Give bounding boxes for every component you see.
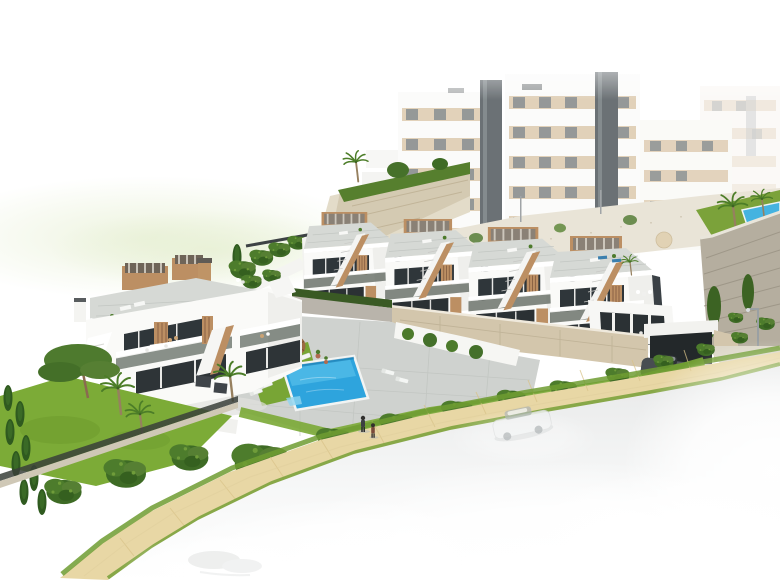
architectural-render: Aerial render of residential complex [0,0,780,580]
render-canvas: Aerial render of residential complex [0,0,780,580]
